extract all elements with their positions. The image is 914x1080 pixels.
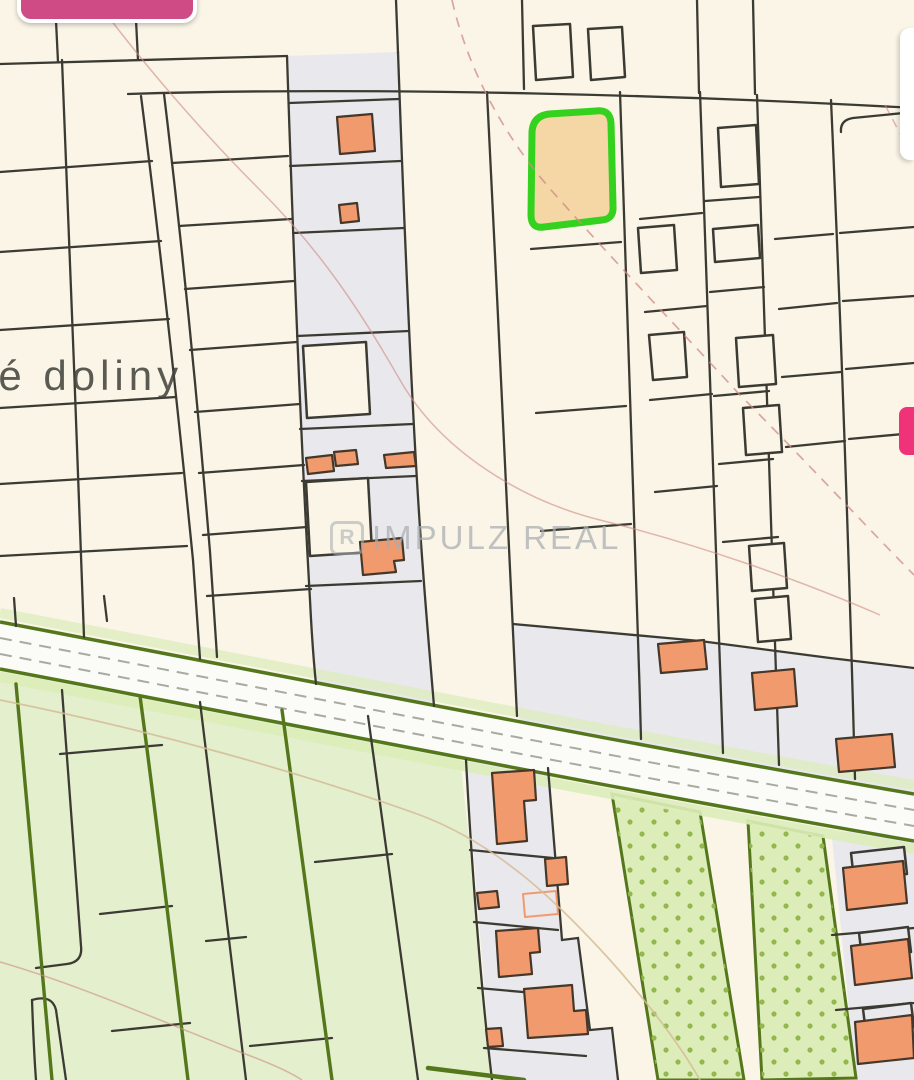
- right-edge-pink-badge[interactable]: [899, 407, 914, 455]
- highlighted-parcel[interactable]: [531, 111, 613, 228]
- right-edge-panel-button[interactable]: [900, 28, 914, 160]
- watermark-text: IMPULZ REAL: [372, 519, 621, 557]
- cadastral-map-screen: né doliny R IMPULZ REAL: [0, 0, 914, 1080]
- watermark-logo-icon: R: [330, 521, 364, 555]
- top-left-pill-button[interactable]: [17, 0, 197, 23]
- map-label-doliny: né doliny: [0, 352, 183, 400]
- watermark: R IMPULZ REAL: [330, 519, 621, 557]
